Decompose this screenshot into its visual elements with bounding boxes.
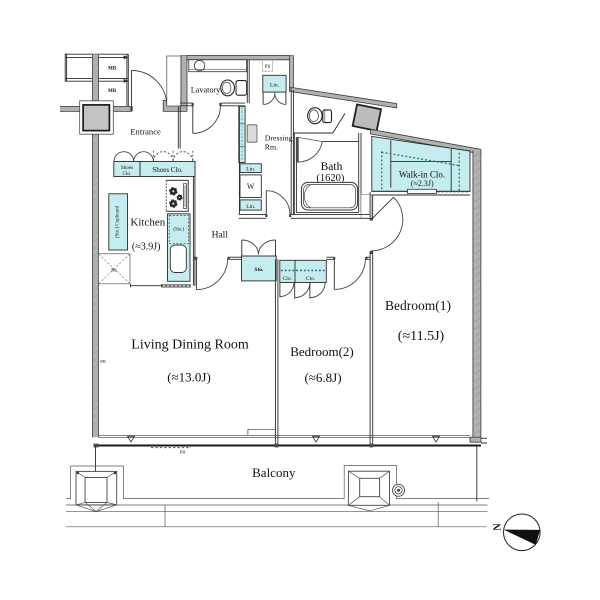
svg-text:PB: PB bbox=[180, 450, 186, 455]
svg-text:Sto.: Sto. bbox=[254, 267, 264, 273]
svg-text:Lavatory: Lavatory bbox=[191, 86, 221, 95]
svg-text:Clo.: Clo. bbox=[123, 171, 132, 177]
svg-text:Clo.: Clo. bbox=[283, 276, 293, 282]
svg-text:MB: MB bbox=[108, 89, 117, 94]
svg-text:(≈3.9J): (≈3.9J) bbox=[132, 241, 161, 252]
svg-text:Lin.: Lin. bbox=[246, 167, 256, 173]
svg-text:Lin.: Lin. bbox=[270, 83, 280, 89]
svg-text:(≈2.3J): (≈2.3J) bbox=[411, 179, 434, 188]
svg-text:N: N bbox=[493, 523, 504, 531]
svg-text:Walk-in Clo.: Walk-in Clo. bbox=[399, 169, 445, 179]
svg-text:Bedroom(2): Bedroom(2) bbox=[290, 344, 354, 359]
svg-text:Living Dining Room: Living Dining Room bbox=[131, 337, 249, 352]
svg-text:(≈13.0J): (≈13.0J) bbox=[167, 369, 211, 384]
svg-text:Shoes Clo.: Shoes Clo. bbox=[152, 166, 183, 174]
svg-text:PB: PB bbox=[100, 359, 106, 364]
svg-text:PS: PS bbox=[265, 65, 271, 70]
svg-text:Rm.: Rm. bbox=[265, 142, 278, 151]
svg-text:(Sto.): (Sto.) bbox=[173, 227, 184, 232]
svg-text:Re: Re bbox=[111, 268, 117, 273]
svg-text:Kitchen: Kitchen bbox=[130, 217, 165, 229]
svg-text:(≈6.8J): (≈6.8J) bbox=[304, 370, 341, 385]
svg-text:MB: MB bbox=[108, 67, 117, 72]
svg-text:Bedroom(1): Bedroom(1) bbox=[385, 298, 451, 313]
svg-text:W: W bbox=[247, 182, 255, 191]
svg-text:Lin.: Lin. bbox=[246, 204, 256, 210]
svg-text:Entrance: Entrance bbox=[130, 126, 161, 136]
svg-text:Balcony: Balcony bbox=[252, 465, 296, 480]
svg-text:(≈11.5J): (≈11.5J) bbox=[398, 329, 445, 344]
svg-text:Clo.: Clo. bbox=[306, 276, 316, 282]
svg-text:Bath: Bath bbox=[321, 161, 343, 173]
svg-text:Dressing: Dressing bbox=[265, 133, 293, 142]
svg-text:Hall: Hall bbox=[212, 231, 229, 241]
svg-text:(Sto.) Cupboard: (Sto.) Cupboard bbox=[116, 205, 121, 238]
svg-text:Shoes: Shoes bbox=[121, 165, 133, 171]
